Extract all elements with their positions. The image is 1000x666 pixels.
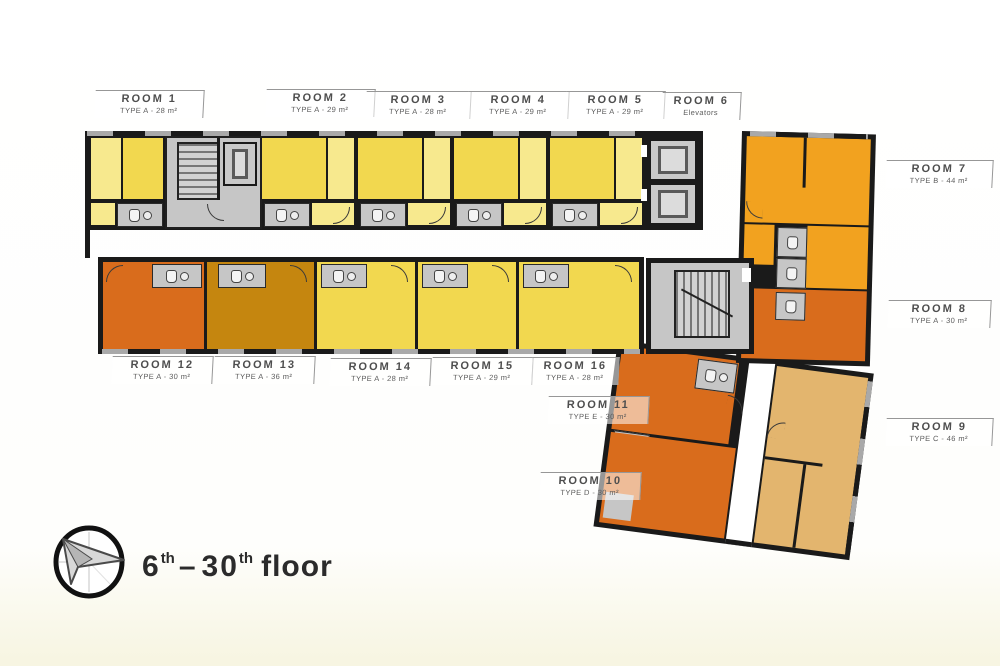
room-spec: TYPE A - 28 m² (535, 373, 613, 382)
room-spec: TYPE A - 28 m² (333, 374, 425, 383)
room-2-entry (328, 138, 354, 199)
floor-range-dash: – (179, 550, 198, 583)
floor-to: 30 (202, 550, 239, 583)
bath-cell (777, 227, 808, 258)
toilet-icon (564, 209, 575, 222)
room-5-area (550, 138, 614, 199)
toilet-icon (333, 270, 344, 283)
room-label: ROOM 10 TYPE D - 30 m² (539, 472, 641, 500)
room-spec: TYPE A - 29 m² (435, 373, 527, 382)
room-name: ROOM 10 (544, 475, 637, 487)
room-label: ROOM 15 TYPE A - 29 m² (431, 357, 533, 385)
bath-cell (218, 264, 266, 288)
sink-icon (180, 272, 189, 281)
window-strip (102, 349, 640, 354)
room-label: ROOM 6 Elevators (661, 92, 741, 120)
staircase (674, 270, 730, 338)
floor-from: 6 (142, 550, 161, 583)
bath-cell (776, 258, 807, 289)
core-partition (217, 138, 220, 200)
room-label: ROOM 1 TYPE A - 28 m² (94, 90, 204, 118)
toilet-icon (786, 236, 797, 249)
toilet-icon (468, 209, 479, 222)
sink-icon (718, 372, 728, 382)
sink-icon (578, 211, 587, 220)
compass (50, 524, 132, 602)
room-3-area (358, 138, 422, 199)
floor-to-sup: th (239, 550, 253, 567)
room-name: ROOM 15 (436, 360, 529, 372)
toilet-icon (434, 270, 445, 283)
room-7-lower-area (806, 226, 869, 290)
room-label: ROOM 3 TYPE A - 28 m² (365, 91, 471, 119)
floor-word: floor (261, 550, 333, 583)
room-name: ROOM 2 (270, 92, 371, 104)
room-label: ROOM 2 TYPE A - 29 m² (265, 89, 375, 117)
room-name: ROOM 3 (370, 94, 467, 106)
door-arc (726, 395, 745, 414)
right-wing (736, 131, 876, 366)
room-name: ROOM 14 (334, 361, 427, 373)
sink-icon (482, 211, 491, 220)
toilet-icon (785, 300, 796, 313)
door-gap (742, 268, 751, 282)
room-spec: Elevators (665, 108, 735, 117)
top-band (85, 131, 703, 230)
bath-cell (360, 203, 406, 227)
room-4-entry (520, 138, 546, 199)
room-label: ROOM 16 TYPE A - 28 m² (531, 357, 619, 385)
toilet-icon (704, 368, 717, 382)
room-name: ROOM 13 (218, 359, 311, 371)
floor-from-sup: th (161, 550, 175, 567)
door-gap (641, 145, 647, 157)
elevator-cell (223, 142, 257, 186)
bath-cell (152, 264, 202, 288)
toilet-icon (786, 267, 797, 280)
room-name: ROOM 1 (99, 93, 200, 105)
room-spec: TYPE C - 46 m² (889, 434, 987, 443)
room-spec: TYPE A - 29 m² (471, 107, 563, 116)
room-spec: TYPE A - 29 m² (269, 105, 369, 114)
staircase (177, 142, 219, 200)
compass-icon (50, 524, 132, 602)
left-exterior-wall (85, 228, 90, 258)
bath-cell (422, 264, 468, 288)
sink-icon (245, 272, 254, 281)
room-spec: TYPE E - 30 m² (551, 412, 643, 421)
bath-cell (552, 203, 598, 227)
door-gap (641, 189, 647, 201)
sink-icon (549, 272, 558, 281)
room-label: ROOM 7 TYPE B - 44 m² (885, 160, 993, 188)
door-arc (207, 204, 224, 221)
stair-core-1 (165, 136, 262, 229)
room-spec: TYPE B - 44 m² (889, 176, 987, 185)
toilet-icon (166, 270, 177, 283)
room-label: ROOM 13 TYPE A - 36 m² (213, 356, 315, 384)
room-spec: TYPE A - 28 m² (98, 106, 198, 115)
room-spec: TYPE A - 28 m² (369, 107, 465, 116)
bath-cell (694, 359, 738, 394)
elevator-cell (649, 139, 697, 181)
room-name: ROOM 16 (536, 360, 615, 372)
room-label: ROOM 9 TYPE C - 46 m² (885, 418, 993, 446)
room-3-entry (424, 138, 450, 199)
room-label: ROOM 5 TYPE A - 29 m² (565, 91, 665, 119)
floor-range-label: 6th–30thfloor (142, 550, 333, 584)
bath-cell (117, 203, 163, 227)
sink-icon (290, 211, 299, 220)
room-spec: TYPE A - 30 m² (891, 316, 985, 325)
room-name: ROOM 7 (890, 163, 989, 175)
sink-icon (448, 272, 457, 281)
bath-cell (523, 264, 569, 288)
angled-wing (593, 340, 873, 560)
toilet-icon (276, 209, 287, 222)
room-7-area (745, 136, 871, 225)
room-label: ROOM 12 TYPE A - 30 m² (111, 356, 213, 384)
room-name: ROOM 9 (890, 421, 989, 433)
room-label: ROOM 14 TYPE A - 28 m² (329, 358, 431, 386)
room-name: ROOM 11 (552, 399, 645, 411)
toilet-icon (129, 209, 140, 222)
room-1-area (123, 138, 163, 199)
room-name: ROOM 8 (892, 303, 987, 315)
toilet-icon (231, 270, 242, 283)
room-1-entry (91, 138, 121, 199)
room-label: ROOM 8 TYPE A - 30 m² (887, 300, 991, 328)
floor-plan-page: ROOM 1 TYPE A - 28 m² ROOM 2 TYPE A - 29… (0, 0, 1000, 666)
room-spec: TYPE A - 36 m² (217, 372, 309, 381)
sink-icon (386, 211, 395, 220)
room-name: ROOM 4 (472, 94, 565, 106)
bath-cell (321, 264, 367, 288)
sink-icon (143, 211, 152, 220)
toilet-icon (535, 270, 546, 283)
room-4-area (454, 138, 518, 199)
bath-cell (264, 203, 310, 227)
room-label: ROOM 11 TYPE E - 30 m² (547, 396, 649, 424)
sink-icon (347, 272, 356, 281)
bottom-band (98, 257, 644, 354)
room-spec: TYPE D - 30 m² (543, 488, 635, 497)
room-1-lower (91, 203, 115, 225)
room-label: ROOM 4 TYPE A - 29 m² (467, 91, 569, 119)
room-2-area (262, 138, 326, 199)
room-name: ROOM 5 (570, 94, 661, 106)
room-name: ROOM 6 (666, 95, 737, 107)
stair-core-2 (646, 258, 754, 354)
room-spec: TYPE A - 30 m² (115, 372, 207, 381)
elevator-cell (649, 183, 697, 225)
bath-cell (775, 292, 806, 321)
room-5-entry (616, 138, 642, 199)
bath-cell (456, 203, 502, 227)
toilet-icon (372, 209, 383, 222)
room-name: ROOM 12 (116, 359, 209, 371)
room-spec: TYPE A - 29 m² (569, 107, 659, 116)
room-11-area (611, 346, 739, 445)
